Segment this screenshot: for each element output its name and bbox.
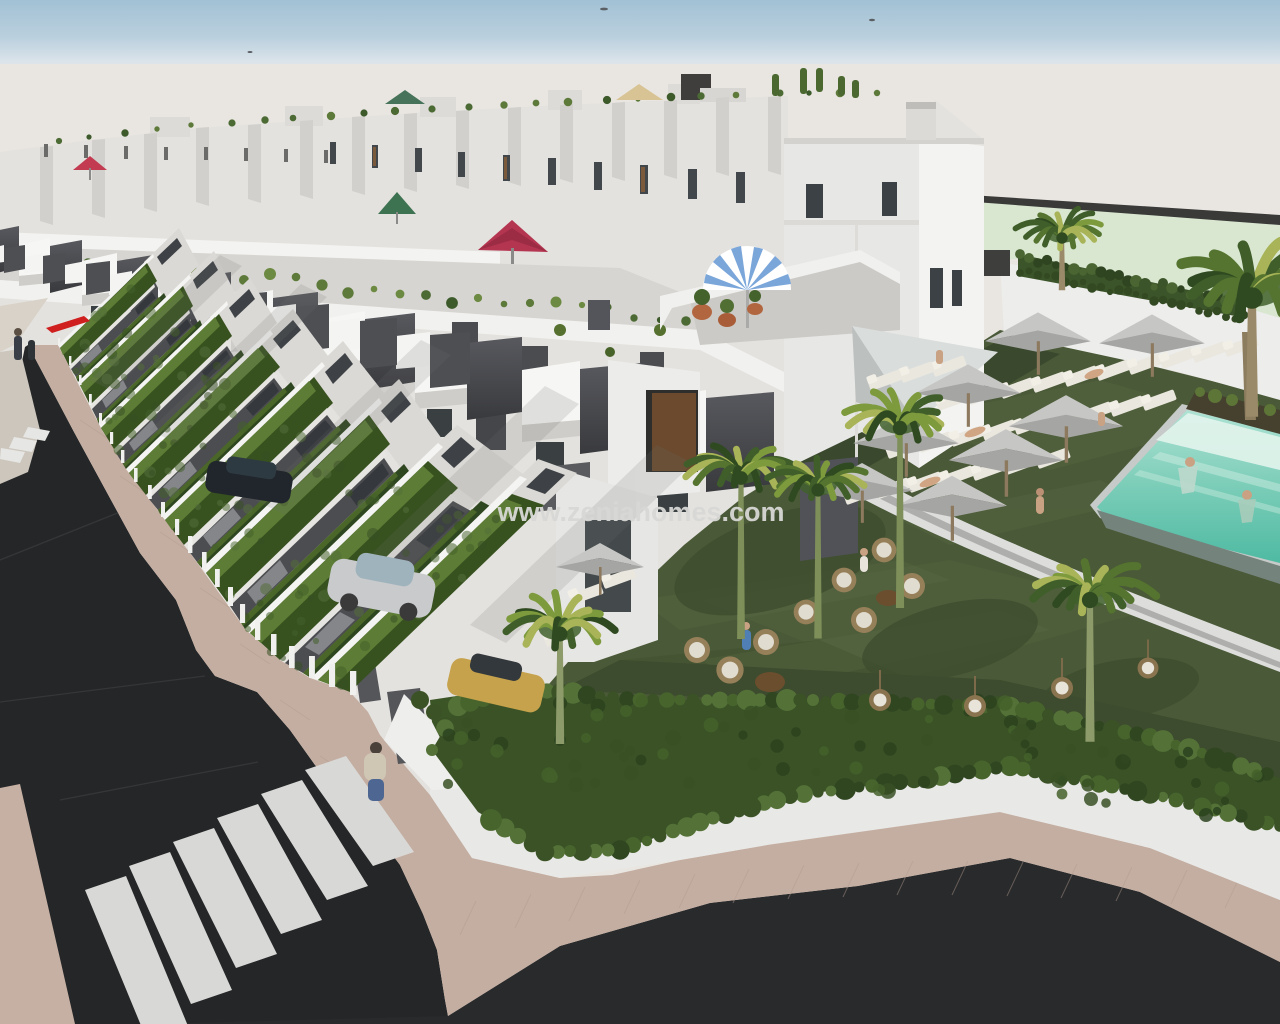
svg-text:www.zeniahomes.com: www.zeniahomes.com <box>496 497 784 527</box>
